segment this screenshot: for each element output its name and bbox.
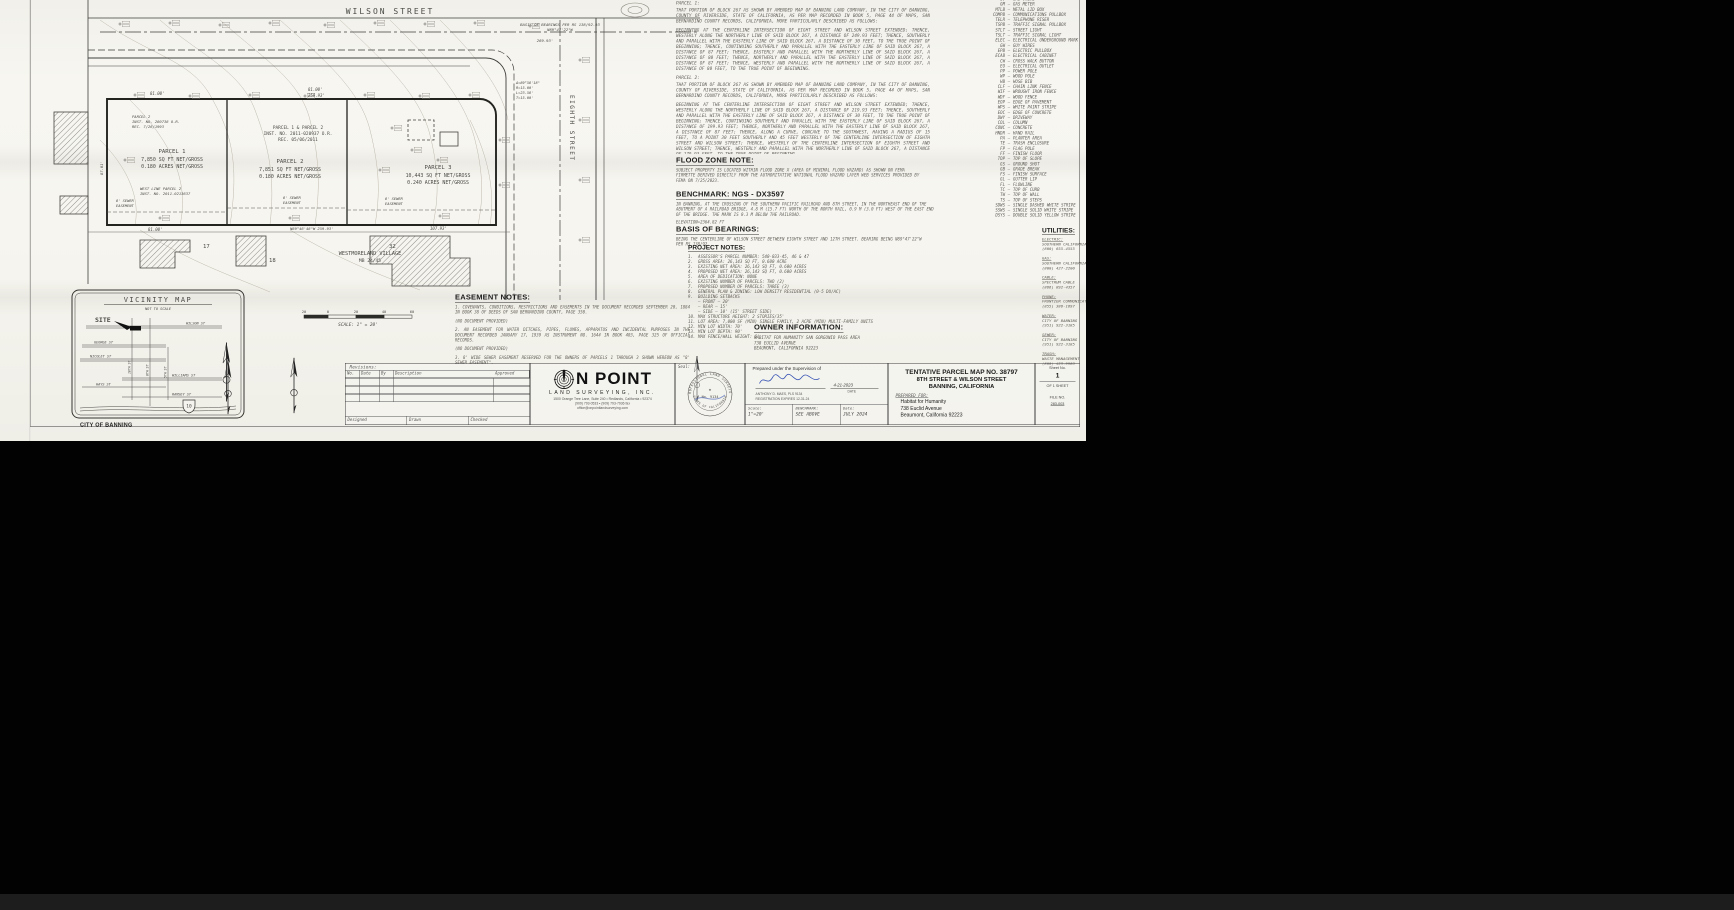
prepared-date-value: 4-21-2023 <box>834 383 853 388</box>
svg-text:20: 20 <box>302 310 306 314</box>
sewer-easement-lines <box>107 208 496 212</box>
legal-paragraph: THAT PORTION OF BLOCK 267 AS SHOWN BY AM… <box>676 83 930 100</box>
utility-entry: GAS: SOUTHERN CALIFORNIA GAS COMPANY (80… <box>1042 256 1086 271</box>
contour-knot <box>621 3 649 17</box>
revisions-empty-row <box>346 394 530 402</box>
easement-paragraph: 1. COVENANTS, CONDITIONS, RESTRICTIONS A… <box>455 305 690 315</box>
svg-text:★: ★ <box>709 388 712 393</box>
curve-data: Δ=89°58'18" R=15.00' L=23.56' T=15.00' <box>515 81 540 100</box>
parcel1-name: PARCEL 1 <box>159 149 186 155</box>
revisions-column-header: Date <box>360 371 380 379</box>
revisions-header-row: No.DateByDescriptionApproved <box>346 370 530 378</box>
registration-expires-line: REGISTRATION EXPIRES 12-31-24 <box>756 398 810 402</box>
svg-text:81.00': 81.00' <box>308 87 322 92</box>
benchmark-cell: BENCHMARK: SEE ABOVE <box>793 405 841 425</box>
parcel-map-sheet[interactable]: WILSON STREET BASIS OF BEARINGS PER RS 1… <box>0 0 1086 441</box>
svg-text:8TH ST: 8TH ST <box>146 363 150 376</box>
easement-paragraph: (NO DOCUMENT PROVIDED) <box>455 319 690 324</box>
title-box: TENTATIVE PARCEL MAP NO. 38797 8TH STREE… <box>888 363 1035 425</box>
legal-paragraph: BEGINNING AT THE CENTERLINE INTERSECTION… <box>676 103 930 155</box>
svg-text:107.93': 107.93' <box>430 226 447 231</box>
svg-text:10TH ST: 10TH ST <box>128 359 132 374</box>
svg-text:87.01': 87.01' <box>99 161 104 175</box>
svg-text:10: 10 <box>186 404 192 410</box>
parcel2-area: 7,851 SQ FT NET/GROSS <box>259 167 321 173</box>
revisions-column-header: Approved <box>494 371 530 379</box>
svg-text:PARCEL 1 & PARCEL 2: PARCEL 1 & PARCEL 2 <box>273 125 324 131</box>
map-title-line1: TENTATIVE PARCEL MAP NO. 38797 <box>889 368 1035 376</box>
revisions-table: Revisions: No.DateByDescriptionApproved … <box>345 363 530 425</box>
svg-text:81.00': 81.00' <box>150 91 164 96</box>
parcel1-heading: PARCEL 1: <box>676 1 930 6</box>
svg-text:8' SEWER: 8' SEWER <box>385 197 404 201</box>
surveyor-email: office@onpointlandsurveying.com <box>531 406 675 411</box>
utility-entry: SEWER: CITY OF BANNING (951) 922-3185 <box>1042 333 1086 348</box>
map-title-line3: BANNING, CALIFORNIA <box>889 384 1035 390</box>
easement-paragraph: 2. AN EASEMENT FOR WATER DITCHES, PIPES,… <box>455 328 690 344</box>
revisions-column-header: Description <box>394 371 494 379</box>
svg-text:EASEMENT: EASEMENT <box>283 201 302 205</box>
benchmark-cell-label: BENCHMARK: <box>796 406 838 411</box>
instrument-note: PARCEL 1 & PARCEL 2 INST. NO. 2011-02093… <box>264 125 333 143</box>
sheet-number-box: Sheet No. 1 OF 1 SHEET FILE NO. 283-003 <box>1035 363 1080 425</box>
utility-entry: ELECTRIC: SOUTHERN CALIFORNIA EDISON COM… <box>1042 237 1086 252</box>
surveyor-seal-stamp: PROFESSIONAL LAND SURVEYOR STATE OF CALI… <box>685 369 735 419</box>
vicinity-subtitle: NOT TO SCALE <box>144 307 172 311</box>
map-title-line2: 8TH STREET & WILSON STREET <box>889 377 1035 383</box>
svg-text:Δ=89°58'18": Δ=89°58'18" <box>515 81 540 85</box>
svg-text:T=15.00': T=15.00' <box>516 96 533 100</box>
svg-text:N89°46'48"W 259.93': N89°46'48"W 259.93' <box>289 226 333 231</box>
scale-label: SCALE: 1" = 20' <box>338 322 378 328</box>
utilities-section: UTILITIES: ELECTRIC: SOUTHERN CALIFORNIA… <box>1042 226 1086 371</box>
benchmark-section: BENCHMARK: NGS - DX3597 IN BANNING, AT T… <box>676 190 936 225</box>
basis-of-bearings-heading: BASIS OF BEARINGS: <box>676 225 759 235</box>
owner-info-heading: OWNER INFORMATION: <box>754 323 843 333</box>
parcel3-area: 10,443 SQ FT NET/GROSS <box>406 173 471 179</box>
legal-paragraph: BEGINNING AT THE CENTERLINE INTERSECTION… <box>676 28 930 72</box>
parcel1-area: 7,850 SQ FT NET/GROSS <box>141 157 203 163</box>
svg-text:WILSON ST: WILSON ST <box>186 322 206 326</box>
revisions-footer-cell: Checked <box>469 417 530 425</box>
flood-zone-body: SUBJECT PROPERTY IS LOCATED WITHIN FLOOD… <box>676 168 926 184</box>
svg-text:WILLIAMS ST: WILLIAMS ST <box>172 374 196 378</box>
on-point-target-icon <box>553 368 575 390</box>
prepared-line: Prepared under the Supervision of <box>746 364 888 372</box>
westmoreland-village-label: WESTMORELAND VILLAGE <box>339 251 401 257</box>
north-arrow-icon <box>288 336 300 435</box>
legend-item: DSYS — DOUBLE SOLID YELLOW STRIPE <box>979 213 1086 218</box>
vicinity-street-grid <box>80 318 236 411</box>
benchmark-heading: BENCHMARK: NGS - DX3597 <box>676 190 784 200</box>
svg-text:GEORGE ST: GEORGE ST <box>94 341 114 345</box>
prepared-for-label: PREPARED FOR: <box>896 393 1035 398</box>
parcel2-name: PARCEL 2 <box>277 159 304 165</box>
svg-text:40: 40 <box>382 310 386 314</box>
revisions-footer-row: DesignedDrawnChecked <box>346 416 530 425</box>
signature <box>758 373 823 388</box>
parcel1-acres: 0.180 ACRES NET/GROSS <box>141 164 203 170</box>
historic-parcel-note: PARCEL 2 INST. NO. 280738 O.R. REC. 7/26… <box>132 114 180 129</box>
sheet-no-value: 1 <box>1036 372 1080 380</box>
svg-text:8' SEWER: 8' SEWER <box>116 199 135 203</box>
legal-description-section: PARCEL 1: THAT PORTION OF BLOCK 267 AS S… <box>676 1 930 154</box>
date-cell-value: JULY 2024 <box>843 412 885 417</box>
revisions-empty-row <box>346 378 530 386</box>
scale-cell: Scale: 1"=20' <box>746 405 794 425</box>
client-line: 738 Euclid Avenue <box>901 405 1035 412</box>
taskbar-strip <box>0 894 1734 910</box>
basis-bearing-value: N89°47'22"W <box>546 27 573 32</box>
vicinity-map: VICINITY MAP NOT TO SCALE <box>70 288 246 420</box>
prepared-box: Prepared under the Supervision of 4-21-2… <box>745 363 888 425</box>
svg-text:REC. 7/26/1993: REC. 7/26/1993 <box>132 124 165 129</box>
svg-text:HAYS ST: HAYS ST <box>95 383 112 387</box>
scale-cell-label: Scale: <box>748 406 790 411</box>
surveyor-logo-text: N POINT <box>576 369 652 389</box>
vicinity-title: VICINITY MAP <box>124 296 193 304</box>
file-no-label: FILE NO. <box>1036 395 1080 400</box>
flood-zone-heading: FLOOD ZONE NOTE: <box>676 156 754 166</box>
paper-fold <box>29 0 31 441</box>
revisions-column-header: No. <box>346 371 360 379</box>
site-arrow-icon <box>114 321 132 330</box>
vicinity-site-label: SITE <box>95 316 111 324</box>
scale-cell-value: 1"=20' <box>748 412 790 417</box>
surveyor-logo-subtitle: LAND SURVEYING, INC. <box>531 390 675 396</box>
surveyor-logo-box: N POINT LAND SURVEYING, INC. 1500 Orange… <box>530 363 675 425</box>
svg-text:EASEMENT: EASEMENT <box>385 202 404 206</box>
parcel1-description: THAT PORTION OF BLOCK 267 AS SHOWN BY AM… <box>676 8 930 72</box>
svg-text:20: 20 <box>354 310 358 314</box>
parcel2-description: THAT PORTION OF BLOCK 267 AS SHOWN BY AM… <box>676 83 930 155</box>
revisions-column-header: By <box>380 371 394 379</box>
legend-abbreviations: GV — GAS VALVE GM — GAS METER MTLB — MET… <box>979 0 1086 218</box>
svg-text:REC. 05/06/2011: REC. 05/06/2011 <box>278 137 318 143</box>
date-rule <box>831 389 879 390</box>
svg-text:L=23.56': L=23.56' <box>516 91 533 95</box>
svg-text:0: 0 <box>327 310 329 314</box>
parcel2-acres: 0.180 ACRES NET/GROSS <box>259 174 321 180</box>
utility-entry: CABLE: SPECTRUM CABLE (866) 892-4357 <box>1042 275 1086 290</box>
flood-zone-section: FLOOD ZONE NOTE: SUBJECT PROPERTY IS LOC… <box>676 156 926 184</box>
dim-269: 269.93' <box>537 38 553 43</box>
sewer-easement-labels: 8' SEWER EASEMENT 8' SEWER EASEMENT 8' S… <box>116 196 404 208</box>
scale-benchmark-date-row: Scale: 1"=20' BENCHMARK: SEE ABOVE Date:… <box>746 404 888 425</box>
survey-points <box>118 20 589 243</box>
revisions-footer-cell: Designed <box>346 417 408 425</box>
utility-entry: PHONE: FRONTIER COMMUNICATIONS (855) 386… <box>1042 294 1086 309</box>
sheet-of-label: OF 1 SHEET <box>1036 384 1080 389</box>
utilities-heading: UTILITIES: <box>1042 227 1075 236</box>
utilities-list: ELECTRIC: SOUTHERN CALIFORNIA EDISON COM… <box>1042 237 1086 366</box>
scale-bar-segments <box>304 315 412 318</box>
owner-info-section: OWNER INFORMATION: HABITAT FOR HUMANITY … <box>754 323 934 351</box>
signature-rule <box>756 389 826 390</box>
date-cell-label: Date: <box>843 406 885 411</box>
client-line: Beaumont, California 92223 <box>901 412 1035 419</box>
easement-notes-heading: EASEMENT NOTES: <box>455 293 530 303</box>
benchmark-cell-value: SEE ABOVE <box>796 412 838 417</box>
scale-ticks: 20 0 20 40 60 <box>302 310 414 314</box>
revisions-empty-row <box>346 386 530 394</box>
scale-bar: 20 0 20 40 60 SCALE: 1" = 20' <box>300 308 435 330</box>
date-cell: Date: JULY 2024 <box>841 405 888 425</box>
svg-text:60: 60 <box>410 310 414 314</box>
benchmark-body: IN BANNING, AT THE CROSSING OF THE SOUTH… <box>676 202 936 218</box>
owner-info-line: BEAUMONT, CALIFORNIA 92223 <box>754 346 934 351</box>
eighth-street-lines <box>560 18 604 300</box>
utility-entry: WATER: CITY OF BANNING (951) 922-3185 <box>1042 313 1086 328</box>
eighth-street-label: EIGHTH STREET <box>568 95 575 161</box>
wilson-street-label: WILSON STREET <box>346 7 435 16</box>
lot-18-label: 18 <box>269 258 276 264</box>
easement-paragraph: (NO DOCUMENT PROVIDED) <box>455 347 690 352</box>
svg-text:INST. NO. 2011-0213637: INST. NO. 2011-0213637 <box>140 191 191 196</box>
sheet-no-divider <box>1040 381 1076 382</box>
file-no-value: 283-003 <box>1036 402 1080 407</box>
svg-text:8' SEWER: 8' SEWER <box>283 196 302 200</box>
screen: WILSON STREET BASIS OF BEARINGS PER RS 1… <box>0 0 1734 910</box>
client-lines: Habitat for Humanity738 Euclid AvenueBea… <box>901 399 1035 419</box>
owner-info-lines: HABITAT FOR HUMANITY SAN GORGONIO PASS A… <box>754 335 934 351</box>
svg-text:R=15.00': R=15.00' <box>516 86 533 90</box>
lot-32-label: 32 <box>389 244 396 250</box>
parcel3-acres: 0.240 ACRES NET/GROSS <box>407 180 469 186</box>
vicinity-north-arrow-icon <box>223 343 230 402</box>
svg-text:RAMSEY ST: RAMSEY ST <box>172 393 192 397</box>
svg-text:259.93': 259.93' <box>308 93 325 98</box>
svg-text:EASEMENT: EASEMENT <box>116 204 135 208</box>
lot-17-label: 17 <box>203 244 210 250</box>
prepared-date-label: DATE <box>848 390 857 394</box>
svg-text:NICOLET ST: NICOLET ST <box>89 355 112 359</box>
svg-text:81.00': 81.00' <box>148 227 162 232</box>
vicinity-city-label: CITY OF BANNING <box>80 422 133 428</box>
parcel2-heading: PARCEL 2: <box>676 76 930 81</box>
site-marker <box>130 326 141 331</box>
easement-notes-body: 1. COVENANTS, CONDITIONS, RESTRICTIONS A… <box>455 305 690 366</box>
survey-drawing: WILSON STREET BASIS OF BEARINGS PER RS 1… <box>40 0 700 300</box>
westmoreland-mb-label: MB 24/45 <box>359 258 381 264</box>
parcel-labels: PARCEL 1 7,850 SQ FT NET/GROSS 0.180 ACR… <box>141 149 470 186</box>
sheet-no-label: Sheet No. <box>1036 366 1080 371</box>
west-line-note: WEST LINE PARCEL 2 INST. NO. 2011-021363… <box>140 186 191 196</box>
surveyor-name-line: ANTHONY D. MAES, PLS 9134 <box>756 393 803 397</box>
easement-notes-section: EASEMENT NOTES: 1. COVENANTS, CONDITIONS… <box>455 293 690 369</box>
parcel3-name: PARCEL 3 <box>425 165 452 171</box>
svg-text:5TH ST: 5TH ST <box>164 365 168 378</box>
revisions-footer-cell: Drawn <box>407 417 469 425</box>
project-notes-heading: PROJECT NOTES: <box>688 244 745 253</box>
svg-text:INST. NO. 2011-020937 O.R.: INST. NO. 2011-020937 O.R. <box>264 131 333 137</box>
seal-box: Seal: PROFESSIONAL LAND SURVEYOR STATE O… <box>675 363 745 425</box>
client-line: Habitat for Humanity <box>901 399 1035 406</box>
legal-paragraph: THAT PORTION OF BLOCK 267 AS SHOWN BY AM… <box>676 8 930 25</box>
